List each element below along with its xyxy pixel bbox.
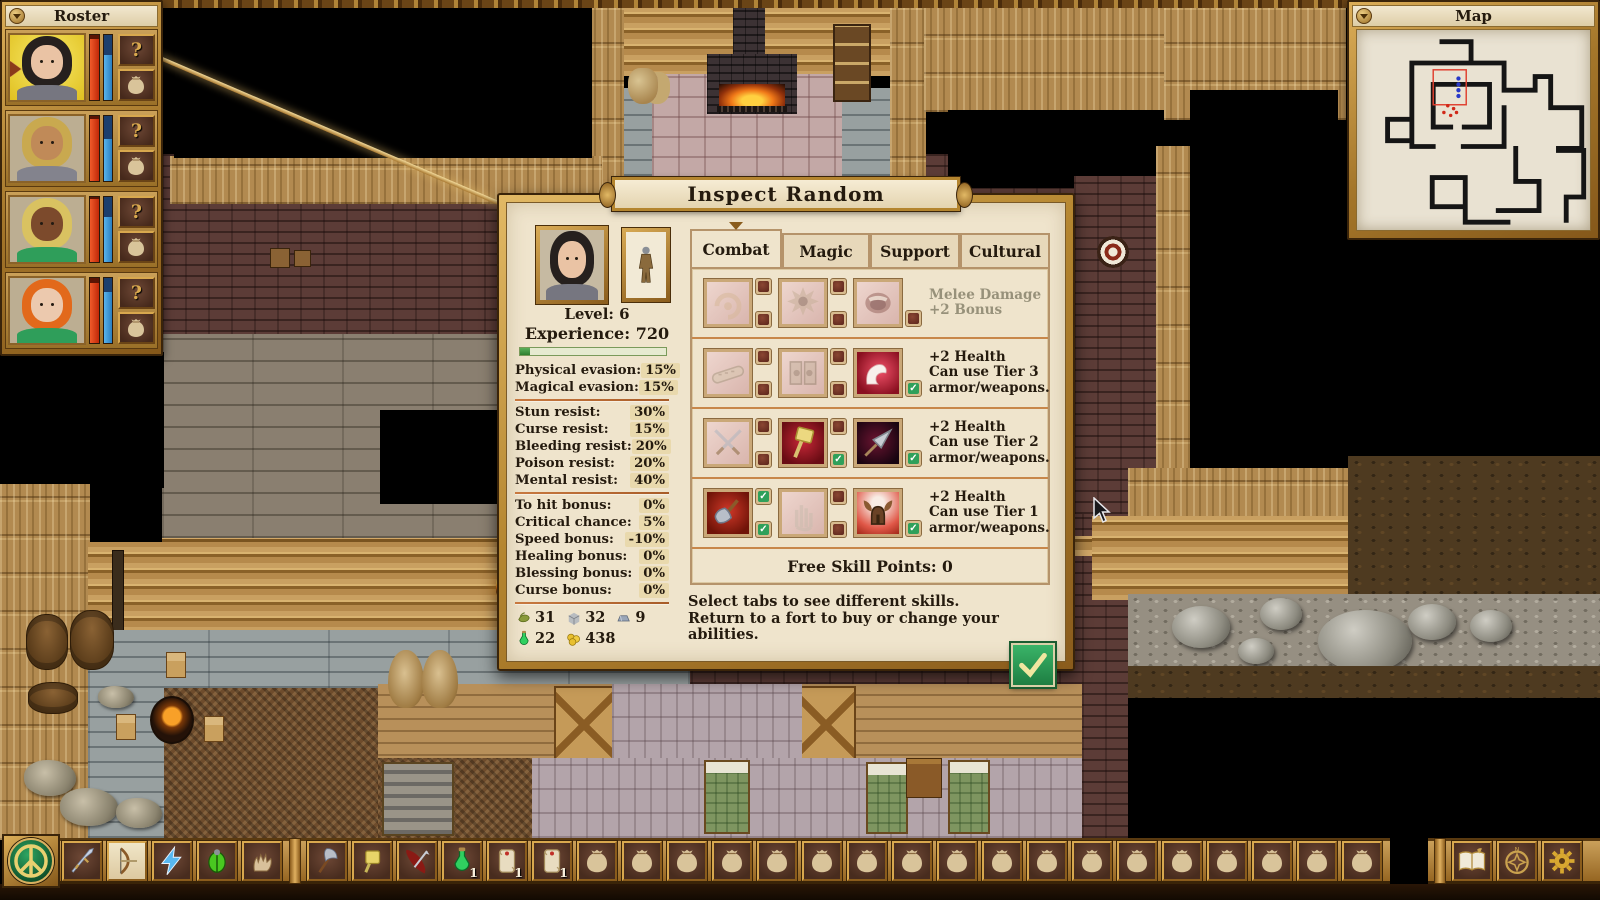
stat-value: 0% <box>639 566 669 581</box>
empty-inventory-slot[interactable] <box>892 841 932 881</box>
bag-icon <box>1302 846 1332 876</box>
confirm-button[interactable] <box>1011 643 1055 687</box>
tab-support[interactable]: Support <box>870 233 960 267</box>
stat-value: 30% <box>630 405 669 420</box>
inventory-button[interactable] <box>118 231 155 263</box>
currency-row: 31329 <box>515 607 669 628</box>
ability-slot-lightning[interactable] <box>152 841 192 881</box>
amphora <box>422 650 458 708</box>
fire-brazier <box>150 696 194 744</box>
dialog-title: Inspect Random <box>687 182 884 206</box>
empty-inventory-slot[interactable] <box>667 841 707 881</box>
stat-label: Healing bonus: <box>515 549 627 564</box>
svg-text:N: N <box>1515 847 1520 854</box>
tab-label: Support <box>880 242 950 261</box>
unexplored-top-left <box>174 8 592 158</box>
chair <box>166 652 186 678</box>
stat-label: Bleeding resist: <box>515 439 632 454</box>
cloak-dagger-icon <box>402 846 432 876</box>
currency-value: 9 <box>635 609 645 626</box>
roster-list: ???? <box>2 29 161 349</box>
stat-row: Mental resist:40% <box>515 472 669 489</box>
unexplored-below-map <box>1334 236 1600 466</box>
avatar <box>10 278 84 343</box>
skill-rank-checkbox[interactable] <box>755 451 772 468</box>
stat-value: 20% <box>630 456 669 471</box>
skill-bandage[interactable] <box>704 349 752 397</box>
avatar <box>10 197 84 262</box>
stat-value: 5% <box>639 515 669 530</box>
inventory-button[interactable] <box>118 150 155 182</box>
backpack-icon <box>124 154 148 178</box>
bunk-bed <box>382 762 454 836</box>
skill-horned-helm[interactable] <box>854 489 902 537</box>
divider <box>515 399 669 401</box>
stat-value: 15% <box>641 363 680 378</box>
empty-inventory-slot[interactable] <box>1117 841 1157 881</box>
bag-icon <box>1212 846 1242 876</box>
wood-wall-lower-right <box>1128 468 1354 520</box>
stat-list: Physical evasion:15%Magical evasion:15%S… <box>515 362 669 649</box>
boulder <box>1260 598 1302 630</box>
roster-collapse-button[interactable] <box>9 8 25 24</box>
peace-icon <box>12 842 50 880</box>
skill-cell: ✓ <box>779 416 847 470</box>
axe-item-icon <box>312 846 342 876</box>
experience-label: Experience: 720 <box>505 324 689 343</box>
settings-icon <box>1547 846 1577 876</box>
selected-marker-icon <box>10 61 21 77</box>
skill-rank-checkbox[interactable] <box>905 310 922 327</box>
boulder <box>1470 610 1512 642</box>
rock <box>60 788 118 826</box>
character-portrait <box>535 225 609 305</box>
bag-icon <box>942 846 972 876</box>
bed <box>866 762 908 834</box>
tab-combat[interactable]: Combat <box>690 229 782 267</box>
skill-rank-checkbox[interactable]: ✓ <box>755 521 772 538</box>
skill-rank-checkbox[interactable] <box>830 381 847 398</box>
mouse-cursor-icon <box>1093 497 1113 529</box>
bag-icon <box>897 846 927 876</box>
skill-cell <box>779 346 847 400</box>
action-bar: 111 <box>58 838 1390 884</box>
skill-rank-checkbox[interactable] <box>830 418 847 435</box>
stat-value: 0% <box>639 583 669 598</box>
bed <box>948 760 990 834</box>
item-slot-hammer-item[interactable] <box>352 841 392 881</box>
skill-rank-checkbox[interactable]: ✓ <box>905 520 922 537</box>
map-header: Map <box>1352 5 1595 27</box>
wall-top-trim <box>162 0 1348 8</box>
skill-rank-checkbox[interactable] <box>755 348 772 365</box>
system-bar: N <box>1428 838 1600 884</box>
enemy-dots <box>1442 104 1458 117</box>
map-collapse-button[interactable] <box>1356 8 1372 24</box>
roster-title: Roster <box>54 7 109 25</box>
skill-cell <box>779 486 847 540</box>
skill-spearhead[interactable] <box>854 419 902 467</box>
bag-icon <box>717 846 747 876</box>
skill-rank-checkbox[interactable]: ✓ <box>755 488 772 505</box>
inspect-button[interactable]: ? <box>118 196 155 228</box>
stat-row: Healing bonus:0% <box>515 548 669 565</box>
health-bar <box>89 196 99 263</box>
item-slot-scroll[interactable]: 1 <box>487 841 527 881</box>
hammer-item-icon <box>357 846 387 876</box>
toolbar-divider <box>1434 838 1446 884</box>
bag-icon <box>582 846 612 876</box>
skill-description: +2 HealthCan use Tier 1armor/weapons. <box>929 490 1050 537</box>
stat-row: To hit bonus:0% <box>515 497 669 514</box>
skill-row: ✓+2 HealthCan use Tier 3armor/weapons. <box>692 339 1048 409</box>
level-label: Level: 6 <box>505 305 689 323</box>
skill-description: +2 HealthCan use Tier 2armor/weapons. <box>929 420 1050 467</box>
bag-icon <box>852 846 882 876</box>
stat-value: 0% <box>639 549 669 564</box>
stack-count: 1 <box>514 865 523 880</box>
roster-member: ? <box>5 110 158 187</box>
mana-bar <box>103 277 113 344</box>
question-icon: ? <box>131 282 142 304</box>
journal-button[interactable] <box>1452 841 1492 881</box>
skill-rank-checkbox[interactable] <box>755 278 772 295</box>
inspect-button[interactable]: ? <box>118 277 155 309</box>
barrel <box>26 614 68 670</box>
skill-panel: Melee Damage+2 Bonus✓+2 HealthCan use Ti… <box>690 267 1050 585</box>
skill-rank-checkbox[interactable] <box>830 488 847 505</box>
door <box>796 686 856 764</box>
dark-doorway <box>380 410 508 504</box>
hint-text: Select tabs to see different skills.Retu… <box>688 594 1066 644</box>
stack-count: 1 <box>469 865 478 880</box>
archery-target <box>1096 234 1130 270</box>
beetle-icon <box>202 846 232 876</box>
mana-bar <box>103 34 113 101</box>
skill-cell: ✓ <box>854 416 922 470</box>
inventory-button[interactable] <box>118 312 155 344</box>
stat-label: Curse bonus: <box>515 583 612 598</box>
avatar <box>10 35 84 100</box>
empty-inventory-slot[interactable] <box>1252 841 1292 881</box>
currency-potion: 22 <box>515 630 555 648</box>
stone-icon <box>565 609 583 627</box>
stat-value: 0% <box>639 498 669 513</box>
item-slot-axe-item[interactable] <box>307 841 347 881</box>
unexplored-bottom-right <box>1128 698 1600 838</box>
coins-icon <box>565 630 583 648</box>
stat-label: Poison resist: <box>515 456 615 471</box>
gate-post <box>112 550 124 638</box>
desk <box>906 758 942 798</box>
stat-value: 15% <box>630 422 669 437</box>
skill-row: Melee Damage+2 Bonus <box>692 269 1048 339</box>
empty-inventory-slot[interactable] <box>1162 841 1202 881</box>
stat-value: 15% <box>639 380 678 395</box>
rock <box>98 686 134 708</box>
amphora <box>388 650 424 708</box>
currency-coins: 438 <box>565 630 615 648</box>
tab-magic[interactable]: Magic <box>782 233 870 267</box>
toolbar-divider <box>289 838 301 884</box>
skill-ram-head[interactable] <box>704 279 752 327</box>
question-icon: ? <box>131 201 142 223</box>
member-portrait[interactable] <box>8 33 86 102</box>
bag-icon <box>1347 846 1377 876</box>
settings-button[interactable] <box>1542 841 1582 881</box>
skill-rank-checkbox[interactable] <box>830 311 847 328</box>
currency-value: 32 <box>585 609 605 626</box>
empty-inventory-slot[interactable] <box>802 841 842 881</box>
gauntlet-icon <box>247 846 277 876</box>
bag-icon <box>672 846 702 876</box>
crate <box>270 248 290 268</box>
equipment-paperdoll <box>621 227 671 303</box>
ability-slot-beetle[interactable] <box>197 841 237 881</box>
skill-shield-doors[interactable] <box>779 349 827 397</box>
ability-slot-sword[interactable] <box>62 841 102 881</box>
ability-slot-bow[interactable] <box>107 841 147 881</box>
viewport-rect <box>1433 70 1466 105</box>
tab-cultural[interactable]: Cultural <box>960 233 1050 267</box>
empty-inventory-slot[interactable] <box>937 841 977 881</box>
roster-member: ? <box>5 191 158 268</box>
roster-header: Roster <box>5 5 158 27</box>
bag-icon <box>627 846 657 876</box>
empty-inventory-slot[interactable] <box>982 841 1022 881</box>
game-screen: Roster ???? Map Inspect Random <box>0 0 1600 900</box>
stat-label: Speed bonus: <box>515 532 614 547</box>
journal-icon <box>1457 846 1487 876</box>
dirt-bank <box>1348 456 1600 600</box>
skill-cell <box>854 276 922 330</box>
potion-icon <box>515 630 533 648</box>
currency-herb: 31 <box>515 609 555 627</box>
bed <box>704 760 750 834</box>
skill-rank-checkbox[interactable] <box>755 418 772 435</box>
boulder <box>1172 606 1230 648</box>
map-panel: Map <box>1347 0 1600 240</box>
main-menu-housing <box>2 834 60 888</box>
question-icon: ? <box>131 39 142 61</box>
sword-icon <box>67 846 97 876</box>
stat-label: Stun resist: <box>515 405 601 420</box>
stack-count: 1 <box>559 865 568 880</box>
currency-row: 22438 <box>515 628 669 649</box>
bow-icon <box>112 846 142 876</box>
bag-icon <box>1032 846 1062 876</box>
divider <box>515 492 669 494</box>
bag-icon <box>1122 846 1152 876</box>
roster-member: ? <box>5 29 158 106</box>
barrel <box>70 610 114 670</box>
inspect-button[interactable]: ? <box>118 34 155 66</box>
skill-row: ✓✓✓+2 HealthCan use Tier 1armor/weapons. <box>692 479 1048 549</box>
roster-member: ? <box>5 272 158 349</box>
empty-inventory-slot[interactable] <box>577 841 617 881</box>
bag-icon <box>807 846 837 876</box>
roster-panel: Roster ???? <box>0 0 163 356</box>
fire-grate <box>717 106 787 112</box>
woven-rug <box>164 688 380 838</box>
inventory-button[interactable] <box>118 69 155 101</box>
skill-description: Melee Damage+2 Bonus <box>929 288 1044 319</box>
stat-label: Mental resist: <box>515 473 618 488</box>
free-skill-points: Free Skill Points: 0 <box>692 549 1048 583</box>
empty-inventory-slot[interactable] <box>1027 841 1067 881</box>
stat-row: Speed bonus:-10% <box>515 531 669 548</box>
avatar <box>540 230 604 300</box>
skill-cell <box>704 276 772 330</box>
minimap[interactable] <box>1356 29 1591 231</box>
bag-icon <box>1167 846 1197 876</box>
skill-cell: ✓✓ <box>704 486 772 540</box>
member-portrait[interactable] <box>8 276 86 345</box>
skill-cell <box>704 346 772 400</box>
skill-war-axe[interactable] <box>704 489 752 537</box>
ability-slot-gauntlet[interactable] <box>242 841 282 881</box>
member-portrait[interactable] <box>8 195 86 264</box>
empty-inventory-slot[interactable] <box>847 841 887 881</box>
unexplored-left <box>0 352 164 488</box>
currency-ingot: 9 <box>615 609 645 627</box>
question-icon: ? <box>131 120 142 142</box>
skill-cell: ✓ <box>854 486 922 540</box>
empty-inventory-slot[interactable] <box>1207 841 1247 881</box>
compass-button[interactable]: N <box>1497 841 1537 881</box>
compass-icon: N <box>1502 846 1532 876</box>
item-slot-scroll[interactable]: 1 <box>532 841 572 881</box>
stat-row: Poison resist:20% <box>515 455 669 472</box>
stat-value: 20% <box>632 439 671 454</box>
peace-menu-button[interactable] <box>8 838 54 884</box>
skill-flex-arm[interactable] <box>854 349 902 397</box>
bag-icon <box>987 846 1017 876</box>
skill-cell <box>779 276 847 330</box>
experience-bar <box>519 347 667 356</box>
tab-label: Magic <box>799 242 852 261</box>
skill-tabs: CombatMagicSupportCultural <box>690 229 1050 267</box>
boulder <box>1408 604 1456 640</box>
skill-rank-checkbox[interactable] <box>755 311 772 328</box>
currency-value: 22 <box>535 630 555 647</box>
inspect-button[interactable]: ? <box>118 115 155 147</box>
stat-label: Critical chance: <box>515 515 632 530</box>
mana-bar <box>103 115 113 182</box>
bag-icon <box>1077 846 1107 876</box>
chair <box>204 716 224 742</box>
avatar <box>10 116 84 181</box>
barrel <box>28 682 78 714</box>
skill-rank-checkbox[interactable]: ✓ <box>905 450 922 467</box>
stat-row: Physical evasion:15% <box>515 362 669 379</box>
skill-rank-checkbox[interactable] <box>830 278 847 295</box>
stat-row: Stun resist:30% <box>515 404 669 421</box>
kitchen-shelf <box>833 24 871 102</box>
skill-spiked-burst[interactable] <box>779 279 827 327</box>
skill-rank-checkbox[interactable]: ✓ <box>905 380 922 397</box>
skill-rank-checkbox[interactable]: ✓ <box>830 451 847 468</box>
lightning-icon <box>157 846 187 876</box>
screen-bottom-trim <box>0 884 1600 900</box>
tab-label: Cultural <box>969 242 1041 261</box>
skill-cell: ✓ <box>854 346 922 400</box>
skill-rank-checkbox[interactable] <box>830 348 847 365</box>
stat-row: Critical chance:5% <box>515 514 669 531</box>
skill-war-shout[interactable] <box>854 279 902 327</box>
skill-rank-checkbox[interactable] <box>755 381 772 398</box>
skill-description: +2 HealthCan use Tier 3armor/weapons. <box>929 350 1050 397</box>
currency-value: 438 <box>585 630 615 647</box>
active-tab-pointer-icon <box>729 222 743 230</box>
mana-bar <box>103 196 113 263</box>
hint-line: Return to a fort to buy or change your a… <box>688 611 1066 644</box>
bag-icon <box>762 846 792 876</box>
party-dots <box>1456 76 1460 98</box>
stat-label: Curse resist: <box>515 422 609 437</box>
stat-row: Blessing bonus:0% <box>515 565 669 582</box>
health-bar <box>89 34 99 101</box>
empty-inventory-slot[interactable] <box>622 841 662 881</box>
empty-inventory-slot[interactable] <box>1342 841 1382 881</box>
empty-inventory-slot[interactable] <box>712 841 752 881</box>
wood-wall-center <box>924 0 1166 112</box>
item-slot-potion[interactable]: 1 <box>442 841 482 881</box>
stat-row: Magical evasion:15% <box>515 379 669 396</box>
boulder <box>1318 610 1412 672</box>
log-wall-lower-right <box>1092 516 1354 600</box>
armored-figure-icon <box>633 239 659 291</box>
boulder <box>1238 638 1274 664</box>
skill-crossed-daggers[interactable] <box>704 419 752 467</box>
brick-column <box>1074 176 1160 514</box>
bag-icon <box>1257 846 1287 876</box>
divider <box>515 602 669 604</box>
hint-line: Select tabs to see different skills. <box>688 594 1066 611</box>
unexplored-right <box>1190 90 1338 484</box>
skill-rank-checkbox[interactable] <box>830 521 847 538</box>
empty-inventory-slot[interactable] <box>1297 841 1337 881</box>
checkmark-icon <box>1016 647 1050 681</box>
door <box>554 686 614 764</box>
member-portrait[interactable] <box>8 114 86 183</box>
rock <box>24 760 76 796</box>
health-bar <box>89 115 99 182</box>
dialog-title-banner: Inspect Random <box>612 177 960 211</box>
stat-row: Bleeding resist:20% <box>515 438 669 455</box>
chair <box>116 714 136 740</box>
skill-open-hand[interactable] <box>779 489 827 537</box>
inspect-dialog: Inspect Random Level: 6 Experience: 720 … <box>497 193 1075 671</box>
ingot-icon <box>615 609 633 627</box>
crate <box>294 250 311 267</box>
currency-stone: 32 <box>565 609 605 627</box>
backpack-icon <box>124 235 148 259</box>
item-slot-cloak-dagger[interactable] <box>397 841 437 881</box>
chevron-down-icon <box>1360 14 1368 19</box>
skill-cell <box>704 416 772 470</box>
stat-label: Blessing bonus: <box>515 566 632 581</box>
chevron-down-icon <box>13 14 21 19</box>
currency-value: 31 <box>535 609 555 626</box>
stat-label: Physical evasion: <box>515 363 641 378</box>
skill-war-hammer[interactable] <box>779 419 827 467</box>
backpack-icon <box>124 316 148 340</box>
empty-inventory-slot[interactable] <box>1072 841 1112 881</box>
stat-value: -10% <box>625 532 669 547</box>
empty-inventory-slot[interactable] <box>757 841 797 881</box>
minimap-maze <box>1357 30 1590 230</box>
